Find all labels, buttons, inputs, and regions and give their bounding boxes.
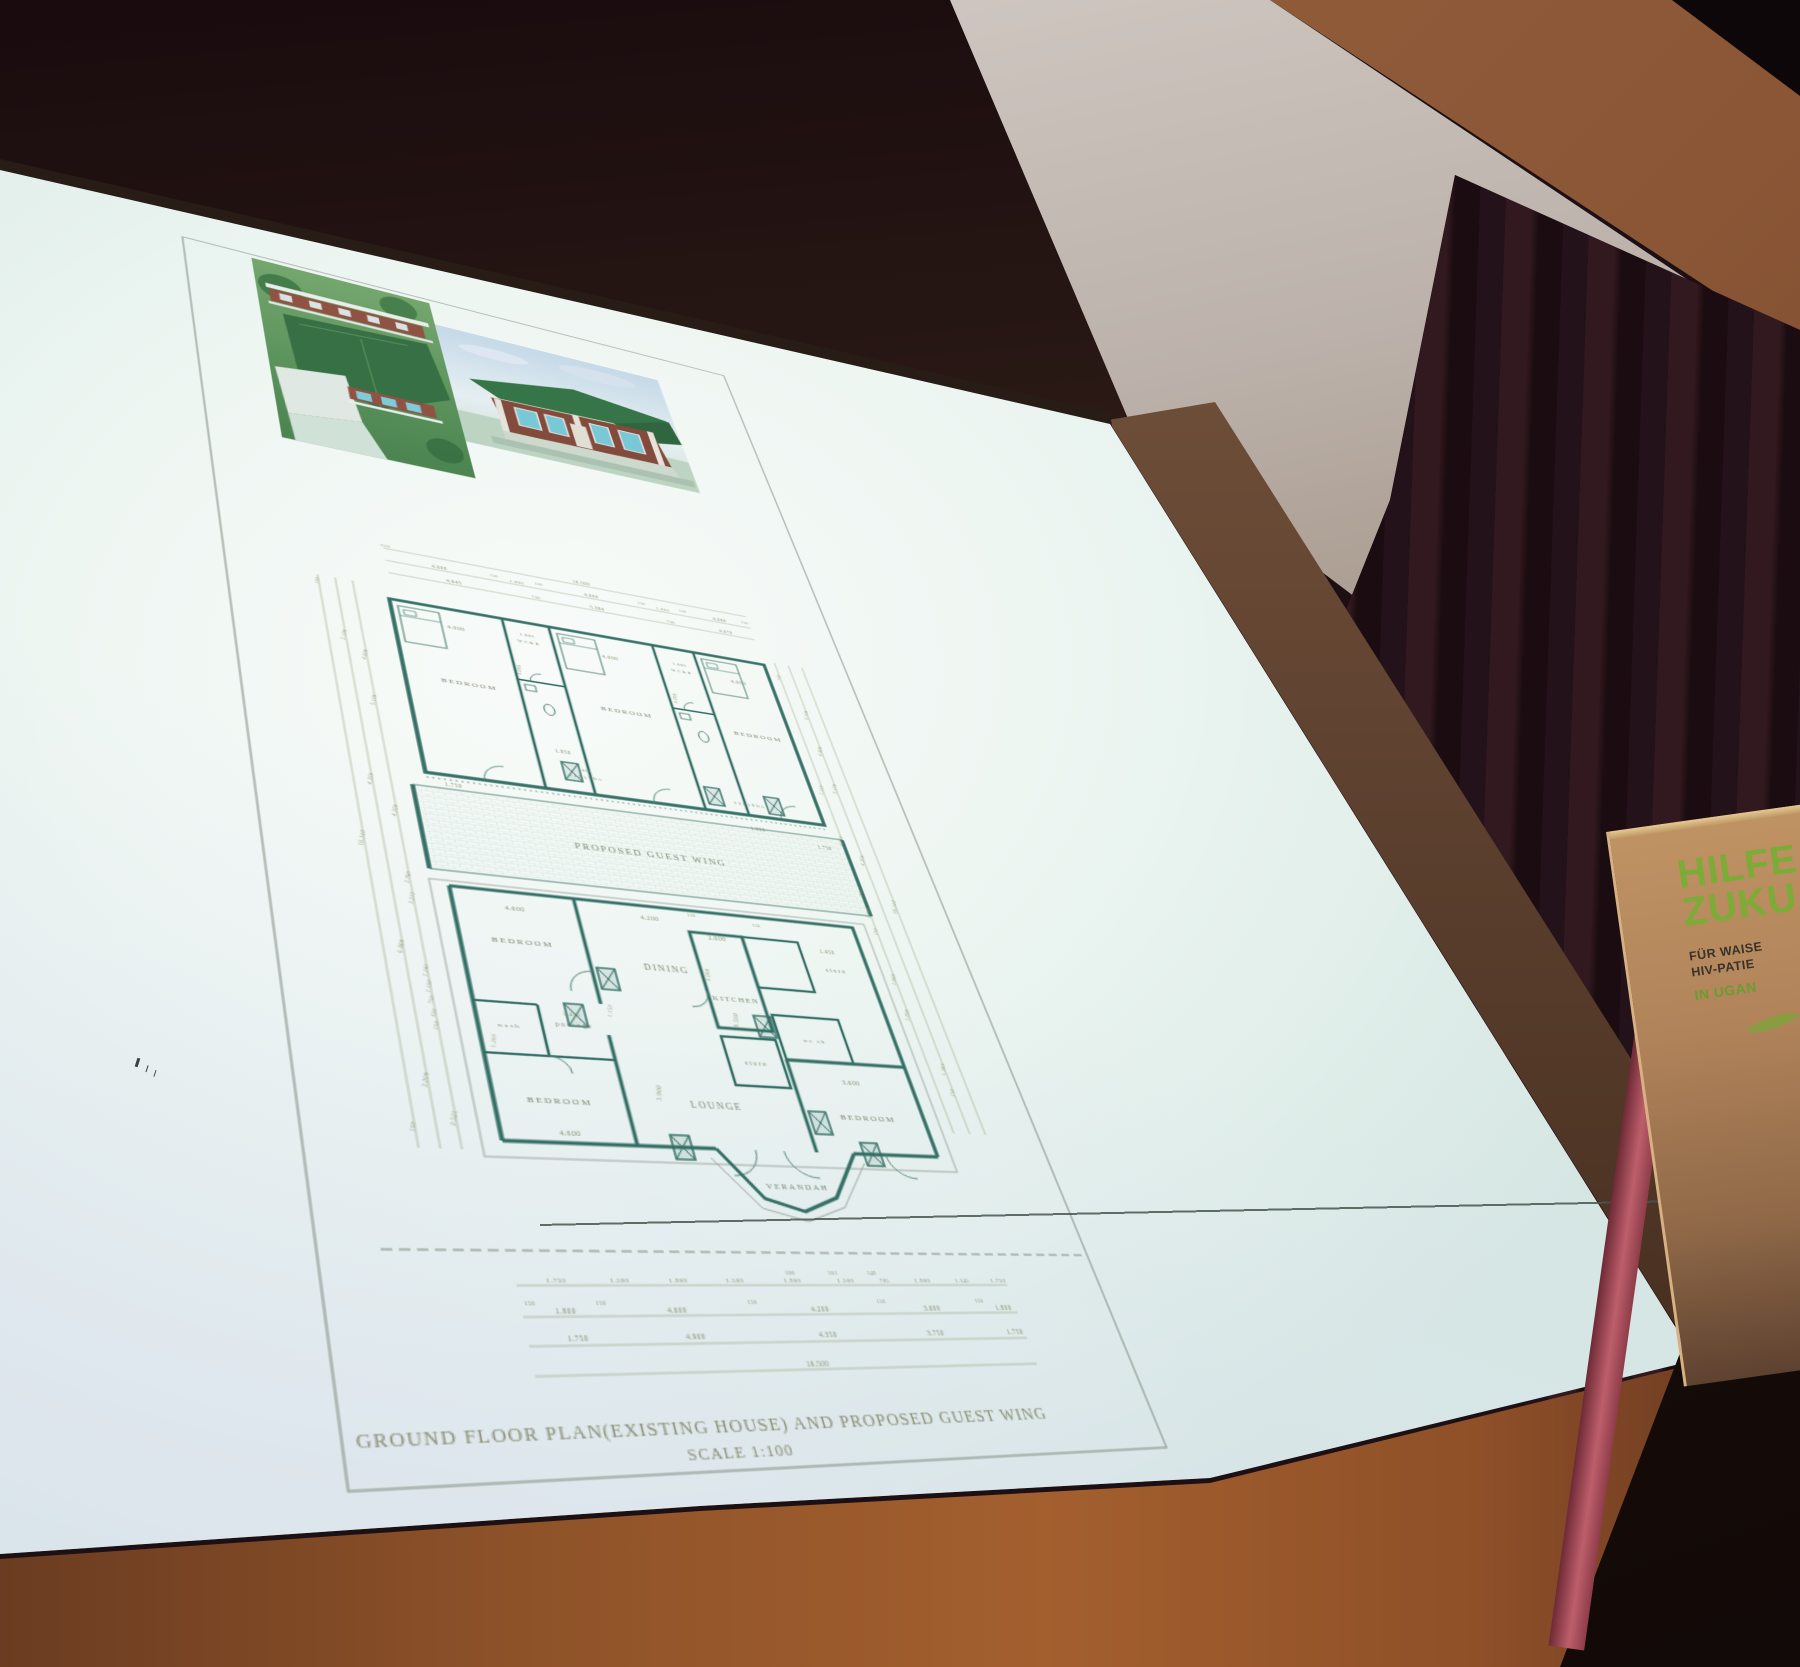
svg-text:4.200: 4.200 — [810, 1307, 831, 1314]
svg-text:store: store — [825, 968, 848, 976]
svg-text:4.600: 4.600 — [559, 1130, 582, 1139]
svg-text:4.000: 4.000 — [730, 679, 747, 687]
boundary-dashed-line — [381, 1249, 1085, 1255]
svg-text:store: store — [744, 1060, 769, 1069]
svg-text:150: 150 — [740, 621, 748, 625]
svg-text:300: 300 — [785, 1270, 796, 1276]
svg-text:150: 150 — [313, 576, 321, 584]
svg-text:150: 150 — [524, 1301, 537, 1307]
svg-text:3.600: 3.600 — [923, 1306, 943, 1313]
svg-text:passage: passage — [555, 1021, 595, 1031]
svg-text:BEDROOM: BEDROOM — [526, 1096, 594, 1108]
svg-text:1.900: 1.900 — [865, 907, 872, 919]
svg-text:VERANDA: VERANDA — [734, 801, 767, 809]
svg-text:150: 150 — [380, 543, 391, 549]
svg-text:3.900: 3.900 — [657, 1085, 665, 1102]
svg-text:3.600: 3.600 — [890, 973, 897, 986]
svg-text:2.000: 2.000 — [707, 935, 727, 943]
svg-text:5.100: 5.100 — [369, 693, 378, 706]
svg-text:150: 150 — [974, 1299, 985, 1304]
svg-text:150: 150 — [751, 924, 761, 929]
svg-text:150: 150 — [876, 1299, 887, 1305]
svg-text:4.945: 4.945 — [446, 579, 463, 586]
svg-text:8.560: 8.560 — [733, 1012, 741, 1028]
svg-text:1.500: 1.500 — [609, 1277, 630, 1284]
svg-text:4.350: 4.350 — [365, 771, 375, 785]
svg-text:1.950: 1.950 — [555, 749, 573, 756]
svg-text:4.800: 4.800 — [516, 663, 522, 675]
svg-text:4.800: 4.800 — [672, 692, 679, 704]
svg-text:WC&B: WC&B — [671, 668, 693, 676]
svg-text:1.150: 1.150 — [606, 1003, 614, 1017]
svg-text:4.900: 4.900 — [685, 1335, 707, 1343]
svg-text:150: 150 — [433, 1020, 441, 1030]
svg-text:BEDROOM: BEDROOM — [600, 705, 654, 719]
svg-text:301: 301 — [827, 1271, 838, 1277]
svg-text:3.750: 3.750 — [926, 1331, 946, 1338]
svg-text:KITCHEN: KITCHEN — [712, 996, 761, 1006]
svg-text:DINING: DINING — [643, 964, 690, 976]
svg-text:1.900: 1.900 — [783, 1277, 803, 1284]
svg-text:150: 150 — [873, 928, 878, 936]
svg-text:3.000: 3.000 — [704, 967, 712, 982]
svg-text:VERANDAH: VERANDAH — [765, 1183, 830, 1192]
svg-text:4.000: 4.000 — [584, 593, 600, 600]
svg-text:2.518: 2.518 — [818, 784, 824, 795]
svg-text:1.383: 1.383 — [939, 1063, 947, 1077]
svg-text:1.800: 1.800 — [672, 661, 687, 668]
svg-text:4.350: 4.350 — [838, 835, 844, 847]
svg-text:16.310: 16.310 — [358, 829, 369, 847]
svg-text:5.100: 5.100 — [803, 709, 809, 720]
svg-text:4.000: 4.000 — [431, 565, 448, 572]
svg-text:3.600: 3.600 — [841, 1080, 861, 1088]
svg-text:SCALE 1:100: SCALE 1:100 — [686, 1442, 797, 1465]
svg-text:BEDROOM: BEDROOM — [440, 677, 498, 692]
main-house-block — [429, 878, 961, 1182]
svg-text:1.145: 1.145 — [953, 1277, 970, 1284]
svg-text:4.000: 4.000 — [447, 625, 466, 633]
svg-text:705: 705 — [878, 1277, 890, 1284]
svg-text:1.500: 1.500 — [725, 1277, 745, 1284]
svg-text:BEDROOM: BEDROOM — [839, 1113, 897, 1124]
svg-text:5.384: 5.384 — [589, 606, 605, 613]
svg-text:150: 150 — [407, 1121, 417, 1133]
svg-text:4.000: 4.000 — [601, 654, 619, 662]
svg-text:3.090: 3.090 — [903, 1008, 910, 1022]
svg-text:750: 750 — [428, 995, 435, 1005]
svg-text:1.800: 1.800 — [519, 632, 535, 639]
svg-text:4.350: 4.350 — [859, 854, 866, 867]
svg-text:wc sh: wc sh — [802, 1037, 827, 1044]
svg-text:150: 150 — [950, 1088, 956, 1097]
svg-text:4.000: 4.000 — [712, 618, 727, 624]
svg-text:150: 150 — [595, 1300, 607, 1306]
svg-text:4.600: 4.600 — [504, 905, 526, 914]
svg-text:150: 150 — [776, 674, 782, 681]
svg-text:1.200: 1.200 — [489, 1033, 498, 1048]
svg-text:1.800: 1.800 — [995, 1306, 1014, 1313]
svg-text:4.600: 4.600 — [360, 648, 369, 660]
svg-text:wash: wash — [497, 1023, 522, 1031]
svg-text:626: 626 — [430, 1008, 438, 1018]
svg-text:1.750: 1.750 — [989, 1277, 1007, 1284]
svg-text:BEDROOM: BEDROOM — [491, 936, 555, 950]
svg-text:1.750: 1.750 — [546, 1277, 568, 1285]
svg-text:4.070: 4.070 — [719, 630, 734, 636]
svg-text:349: 349 — [866, 1271, 877, 1276]
svg-text:4.350: 4.350 — [818, 1333, 839, 1341]
svg-text:16.500: 16.500 — [806, 1362, 832, 1370]
svg-text:5.100: 5.100 — [831, 783, 837, 795]
svg-text:1.500: 1.500 — [836, 1277, 855, 1284]
svg-text:1.800: 1.800 — [555, 1309, 578, 1317]
svg-text:1.800: 1.800 — [656, 606, 671, 612]
svg-text:900: 900 — [858, 889, 863, 897]
svg-text:150: 150 — [747, 1300, 759, 1306]
leaf-icon — [1747, 1003, 1800, 1043]
svg-text:LOUNGE: LOUNGE — [690, 1101, 745, 1112]
auditorium-photo: 15016.5004.0001501.8001504.0001501.80015… — [0, 0, 1800, 1667]
svg-text:1.450: 1.450 — [819, 950, 837, 957]
svg-text:2.450: 2.450 — [562, 1011, 581, 1018]
svg-text:150: 150 — [534, 582, 543, 587]
svg-text:1.900: 1.900 — [668, 1277, 689, 1284]
svg-text:4.800: 4.800 — [817, 745, 823, 757]
svg-text:5.100: 5.100 — [339, 628, 348, 640]
svg-text:1.750: 1.750 — [1006, 1330, 1025, 1337]
svg-text:150: 150 — [637, 601, 646, 606]
svg-text:BEDROOM: BEDROOM — [733, 730, 783, 744]
svg-text:150: 150 — [489, 574, 498, 579]
svg-text:1.900: 1.900 — [913, 1277, 932, 1284]
svg-text:150: 150 — [678, 609, 687, 614]
svg-text:1.750: 1.750 — [567, 1336, 590, 1344]
svg-text:WC&B: WC&B — [517, 638, 541, 646]
svg-text:16.500: 16.500 — [572, 580, 591, 587]
svg-text:4.200: 4.200 — [640, 915, 660, 923]
svg-text:150: 150 — [686, 913, 696, 918]
svg-text:16.310: 16.310 — [892, 899, 899, 915]
svg-text:4.600: 4.600 — [667, 1308, 689, 1316]
